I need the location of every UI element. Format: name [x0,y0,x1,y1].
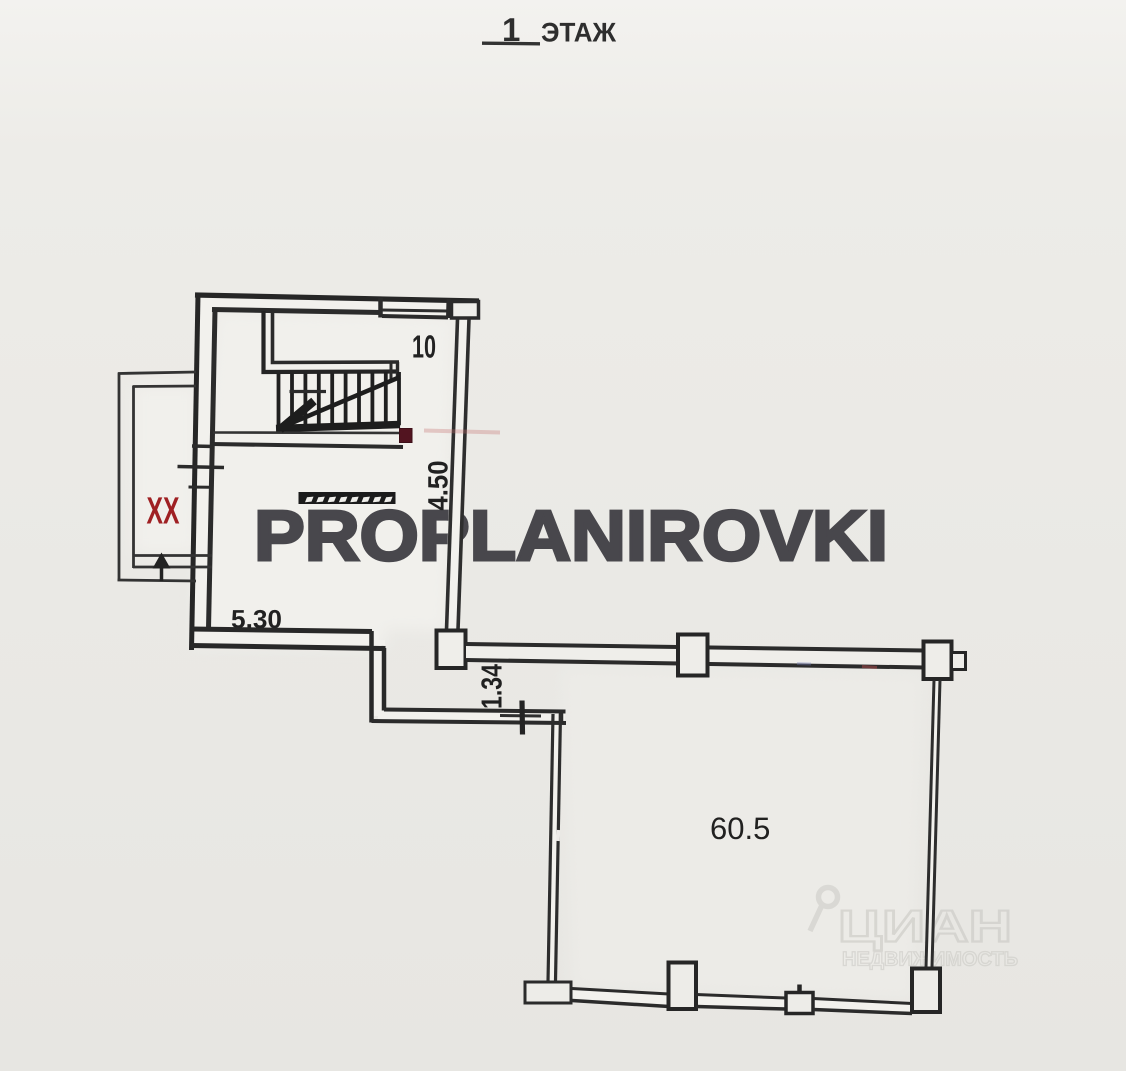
svg-text:PROPLANIROVKI: PROPLANIROVKI [254,497,888,576]
svg-text:60.5: 60.5 [710,811,770,846]
svg-text:1.34: 1.34 [477,664,509,709]
svg-text:10: 10 [412,329,436,365]
svg-text:4.50: 4.50 [423,461,454,511]
svg-text:ЦИАН: ЦИАН [838,901,1012,952]
svg-text:ЭТАЖ: ЭТАЖ [541,18,617,48]
svg-text:1: 1 [502,11,520,48]
svg-text:XX: XX [147,491,180,533]
